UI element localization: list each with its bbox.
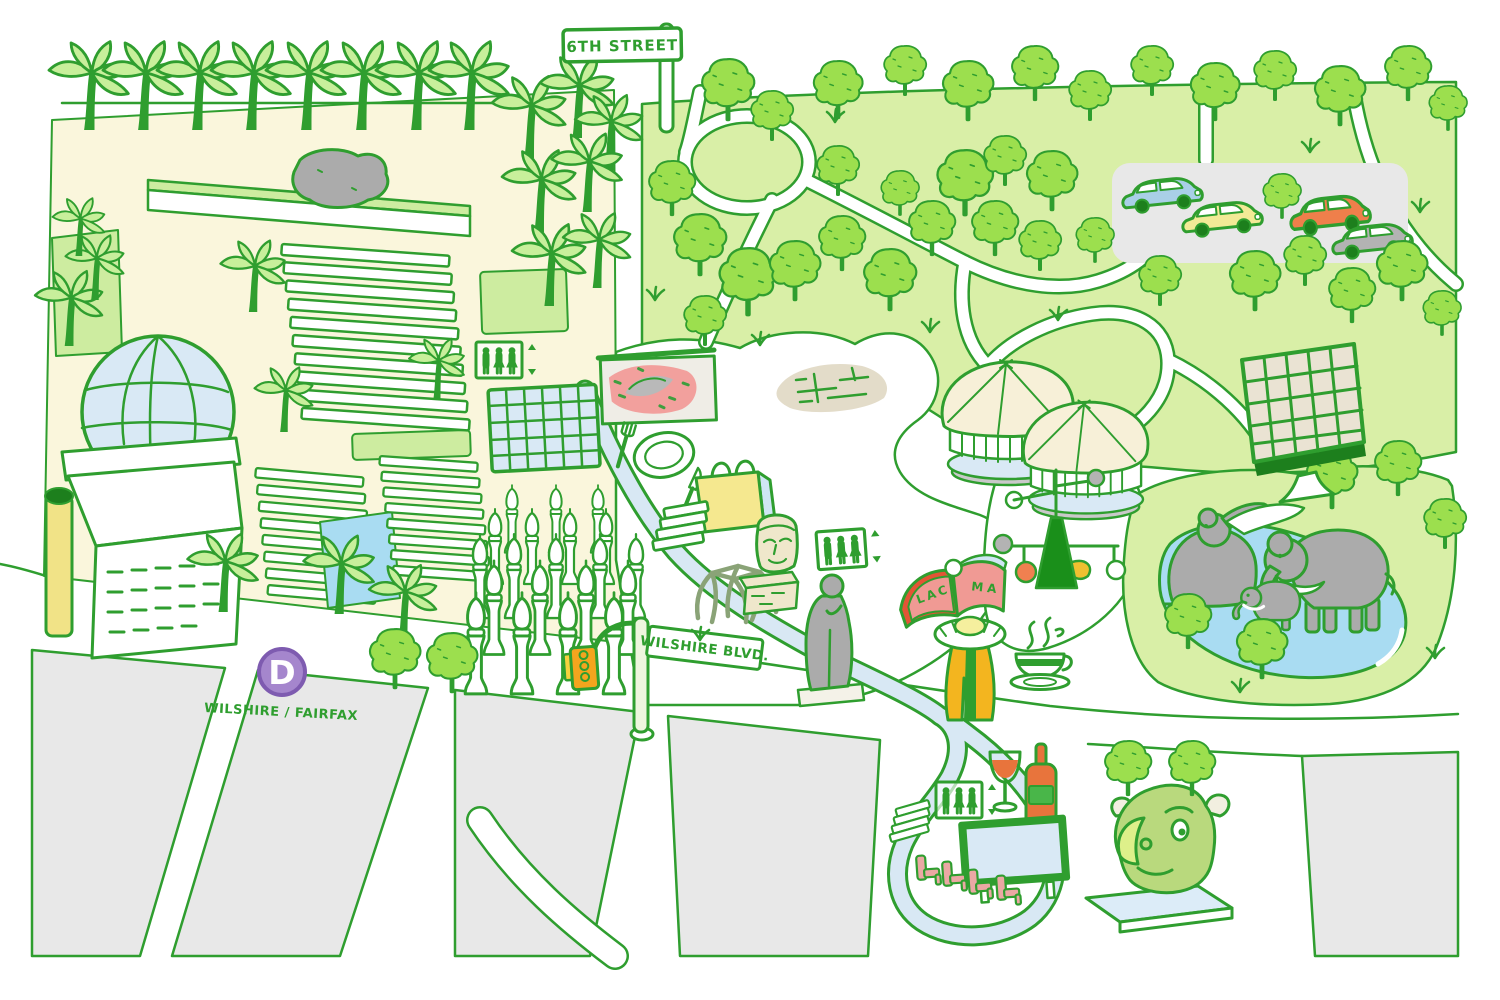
sidewalk-tree bbox=[370, 629, 420, 689]
street-lamp bbox=[530, 561, 550, 655]
hat-figure-sculpture bbox=[935, 617, 1005, 720]
yellow-column bbox=[46, 496, 72, 636]
city-block bbox=[1302, 752, 1458, 956]
pavilion-building bbox=[1023, 400, 1148, 519]
column-top bbox=[45, 488, 73, 504]
restroom-sign bbox=[936, 782, 996, 818]
street-sign-label: 6TH STREET bbox=[566, 36, 678, 56]
illustrated-map: 6TH STREET WILSHIRE BLVD. D WILSHIRE / F… bbox=[0, 0, 1500, 1000]
tree bbox=[1105, 741, 1151, 796]
metro-line-letter: D bbox=[268, 653, 295, 692]
tree bbox=[884, 46, 926, 96]
lawn-patch bbox=[480, 269, 568, 334]
mural-banner bbox=[598, 350, 716, 424]
map-svg: 6TH STREET WILSHIRE BLVD. D WILSHIRE / F… bbox=[0, 0, 1500, 1000]
street-lamp bbox=[484, 561, 504, 655]
outdoor-screen bbox=[916, 814, 1071, 905]
solar-canopy bbox=[488, 384, 600, 472]
lawn-patch bbox=[352, 430, 471, 460]
wilshire-road bbox=[0, 564, 46, 576]
city-block bbox=[668, 716, 880, 956]
wine-bottle-icon bbox=[1026, 744, 1056, 828]
levitated-mass-rock bbox=[293, 150, 388, 208]
street-lamp bbox=[511, 593, 533, 694]
theater-seat bbox=[916, 854, 941, 886]
parking-lot bbox=[1112, 163, 1414, 263]
bull-head-sculpture bbox=[1086, 785, 1232, 932]
street-lamp bbox=[576, 561, 596, 655]
street-lamp bbox=[603, 593, 625, 694]
screen-surface bbox=[967, 823, 1062, 879]
stairs bbox=[883, 800, 936, 842]
